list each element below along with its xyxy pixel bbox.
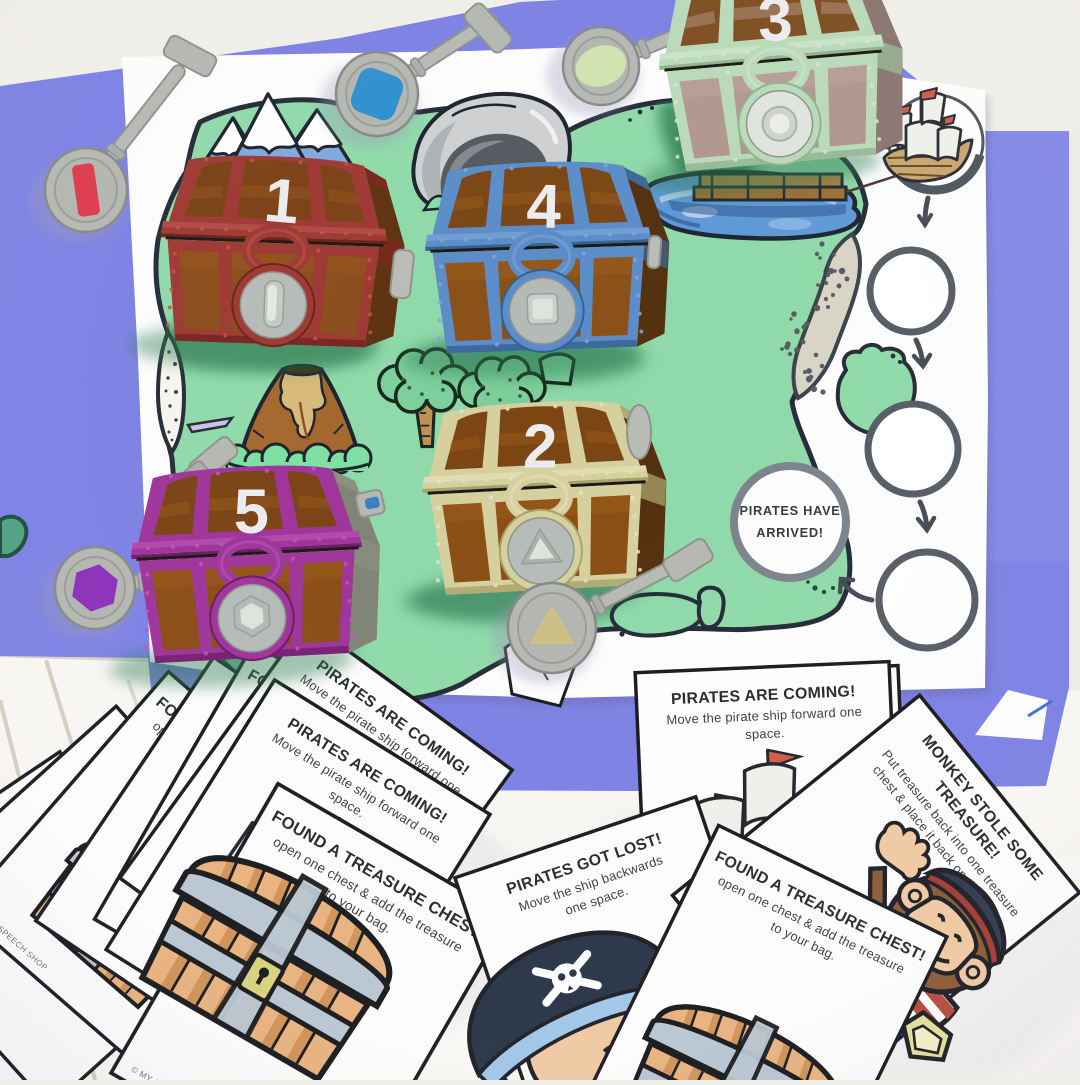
svg-text:PIRATES HAVE: PIRATES HAVE bbox=[739, 503, 840, 518]
svg-text:ARRIVED!: ARRIVED! bbox=[756, 525, 823, 540]
svg-text:space.: space. bbox=[745, 725, 785, 742]
